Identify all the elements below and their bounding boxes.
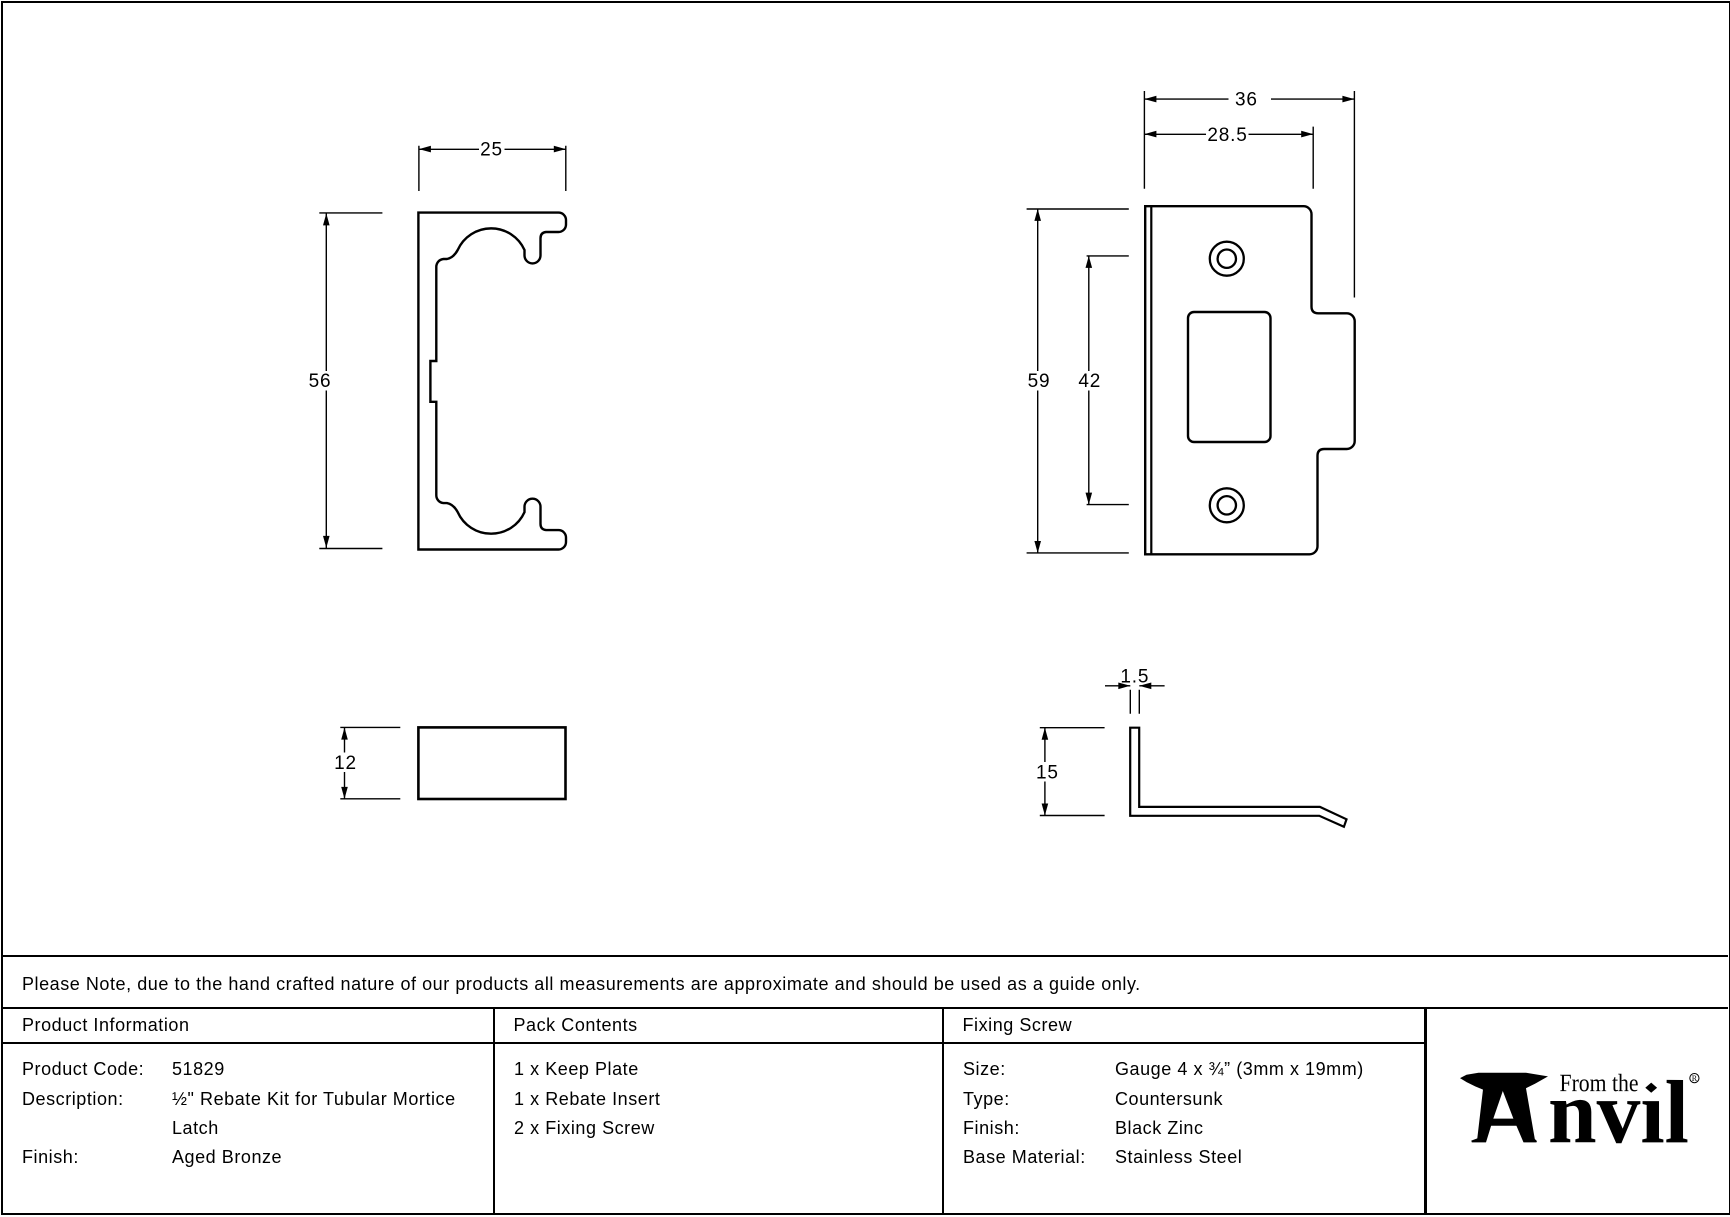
svg-text:25: 25 — [480, 140, 503, 161]
svg-text:12: 12 — [334, 753, 357, 774]
svg-text:15: 15 — [1036, 763, 1059, 784]
svg-text:28.5: 28.5 — [1207, 125, 1247, 146]
svg-text:1.5: 1.5 — [1120, 667, 1149, 688]
svg-text:56: 56 — [309, 371, 332, 392]
svg-text:36: 36 — [1235, 90, 1258, 111]
svg-text:nvıl: nvıl — [1548, 1063, 1689, 1162]
svg-text:R: R — [1692, 1074, 1698, 1083]
svg-text:42: 42 — [1078, 371, 1101, 392]
svg-text:59: 59 — [1028, 371, 1051, 392]
